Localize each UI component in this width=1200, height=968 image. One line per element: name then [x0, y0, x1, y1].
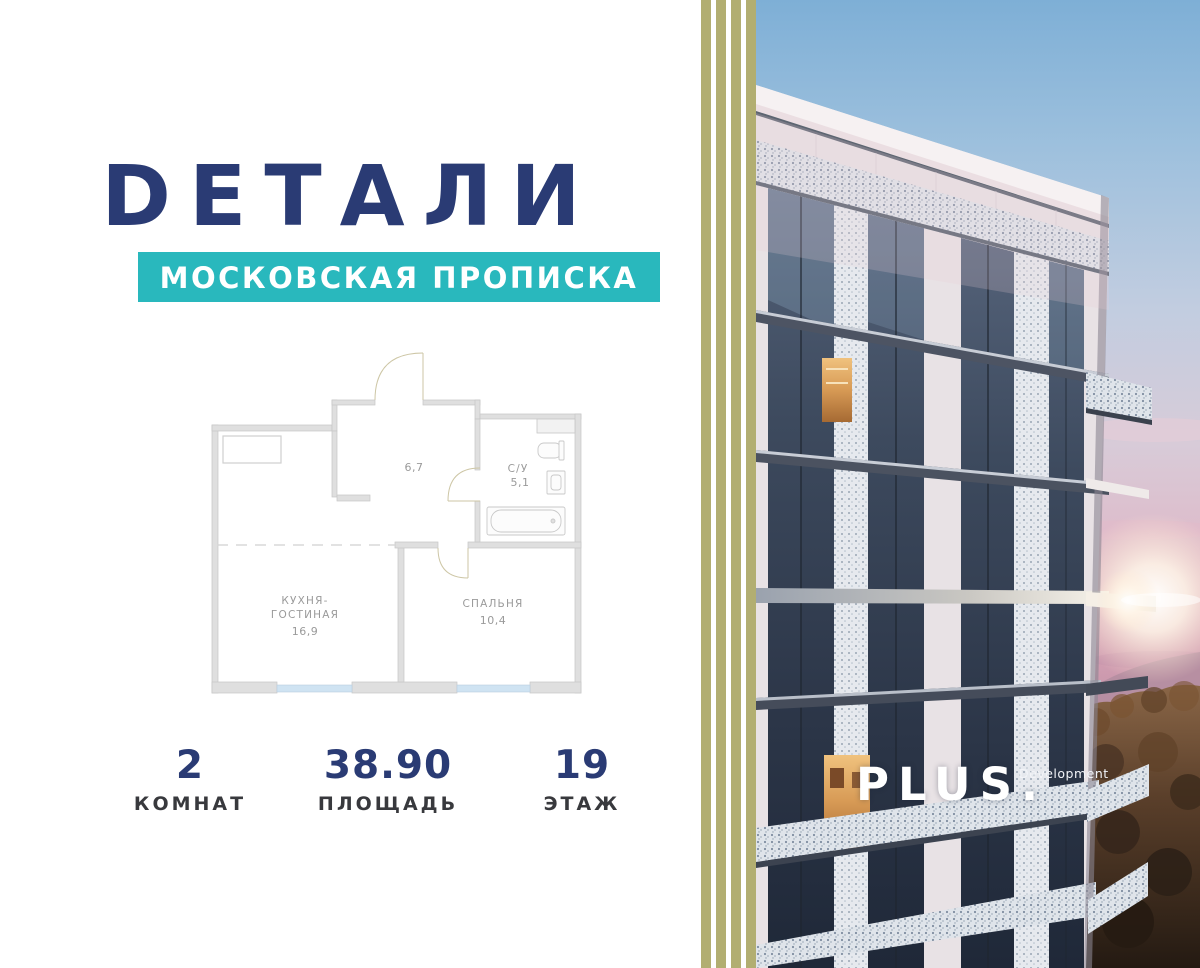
sink-icon: [547, 471, 565, 494]
building-photo-illustration: [756, 0, 1200, 968]
sun-streak: [1121, 593, 1200, 607]
plan-closet: [223, 436, 281, 463]
kitchen-name-line2: ГОСТИНАЯ: [271, 609, 339, 621]
hallway-area-label: 6,7: [405, 461, 424, 474]
building-photo: PLUS. Development: [756, 0, 1200, 968]
bedroom-name-label: СПАЛЬНЯ: [462, 598, 523, 610]
plan-walls: [212, 400, 581, 693]
floor-plan: 6,7 С/У 5,1 КУХНЯ- ГОСТИНАЯ 16,9 СПАЛЬНЯ…: [190, 345, 600, 705]
bathroom-area-label: 5,1: [511, 476, 530, 489]
stat-floor: 19 ЭТАЖ: [462, 746, 702, 815]
left-panel: DЕТАЛИ МОСКОВСКАЯ ПРОПИСКА: [0, 0, 700, 968]
toilet-icon: [538, 443, 561, 458]
tagline-banner: МОСКОВСКАЯ ПРОПИСКА: [138, 252, 660, 302]
plan-window: [457, 685, 530, 692]
tagline-text: МОСКОВСКАЯ ПРОПИСКА: [138, 252, 660, 302]
stripe-divider: [701, 0, 756, 968]
promo-card: DЕТАЛИ МОСКОВСКАЯ ПРОПИСКА: [0, 0, 1200, 968]
brand-logo: DЕТАЛИ: [60, 148, 640, 244]
plan-window: [277, 685, 352, 692]
stat-floor-label: ЭТАЖ: [462, 793, 702, 815]
plan-shaft: [537, 419, 575, 433]
stat-floor-value: 19: [462, 746, 702, 786]
bedroom-area-label: 10,4: [480, 614, 507, 627]
kitchen-name-line1: КУХНЯ-: [281, 595, 328, 607]
bathroom-name-label: С/У: [508, 463, 529, 475]
kitchen-area-label: 16,9: [292, 625, 319, 638]
developer-logo-suffix: Development: [1019, 766, 1109, 781]
